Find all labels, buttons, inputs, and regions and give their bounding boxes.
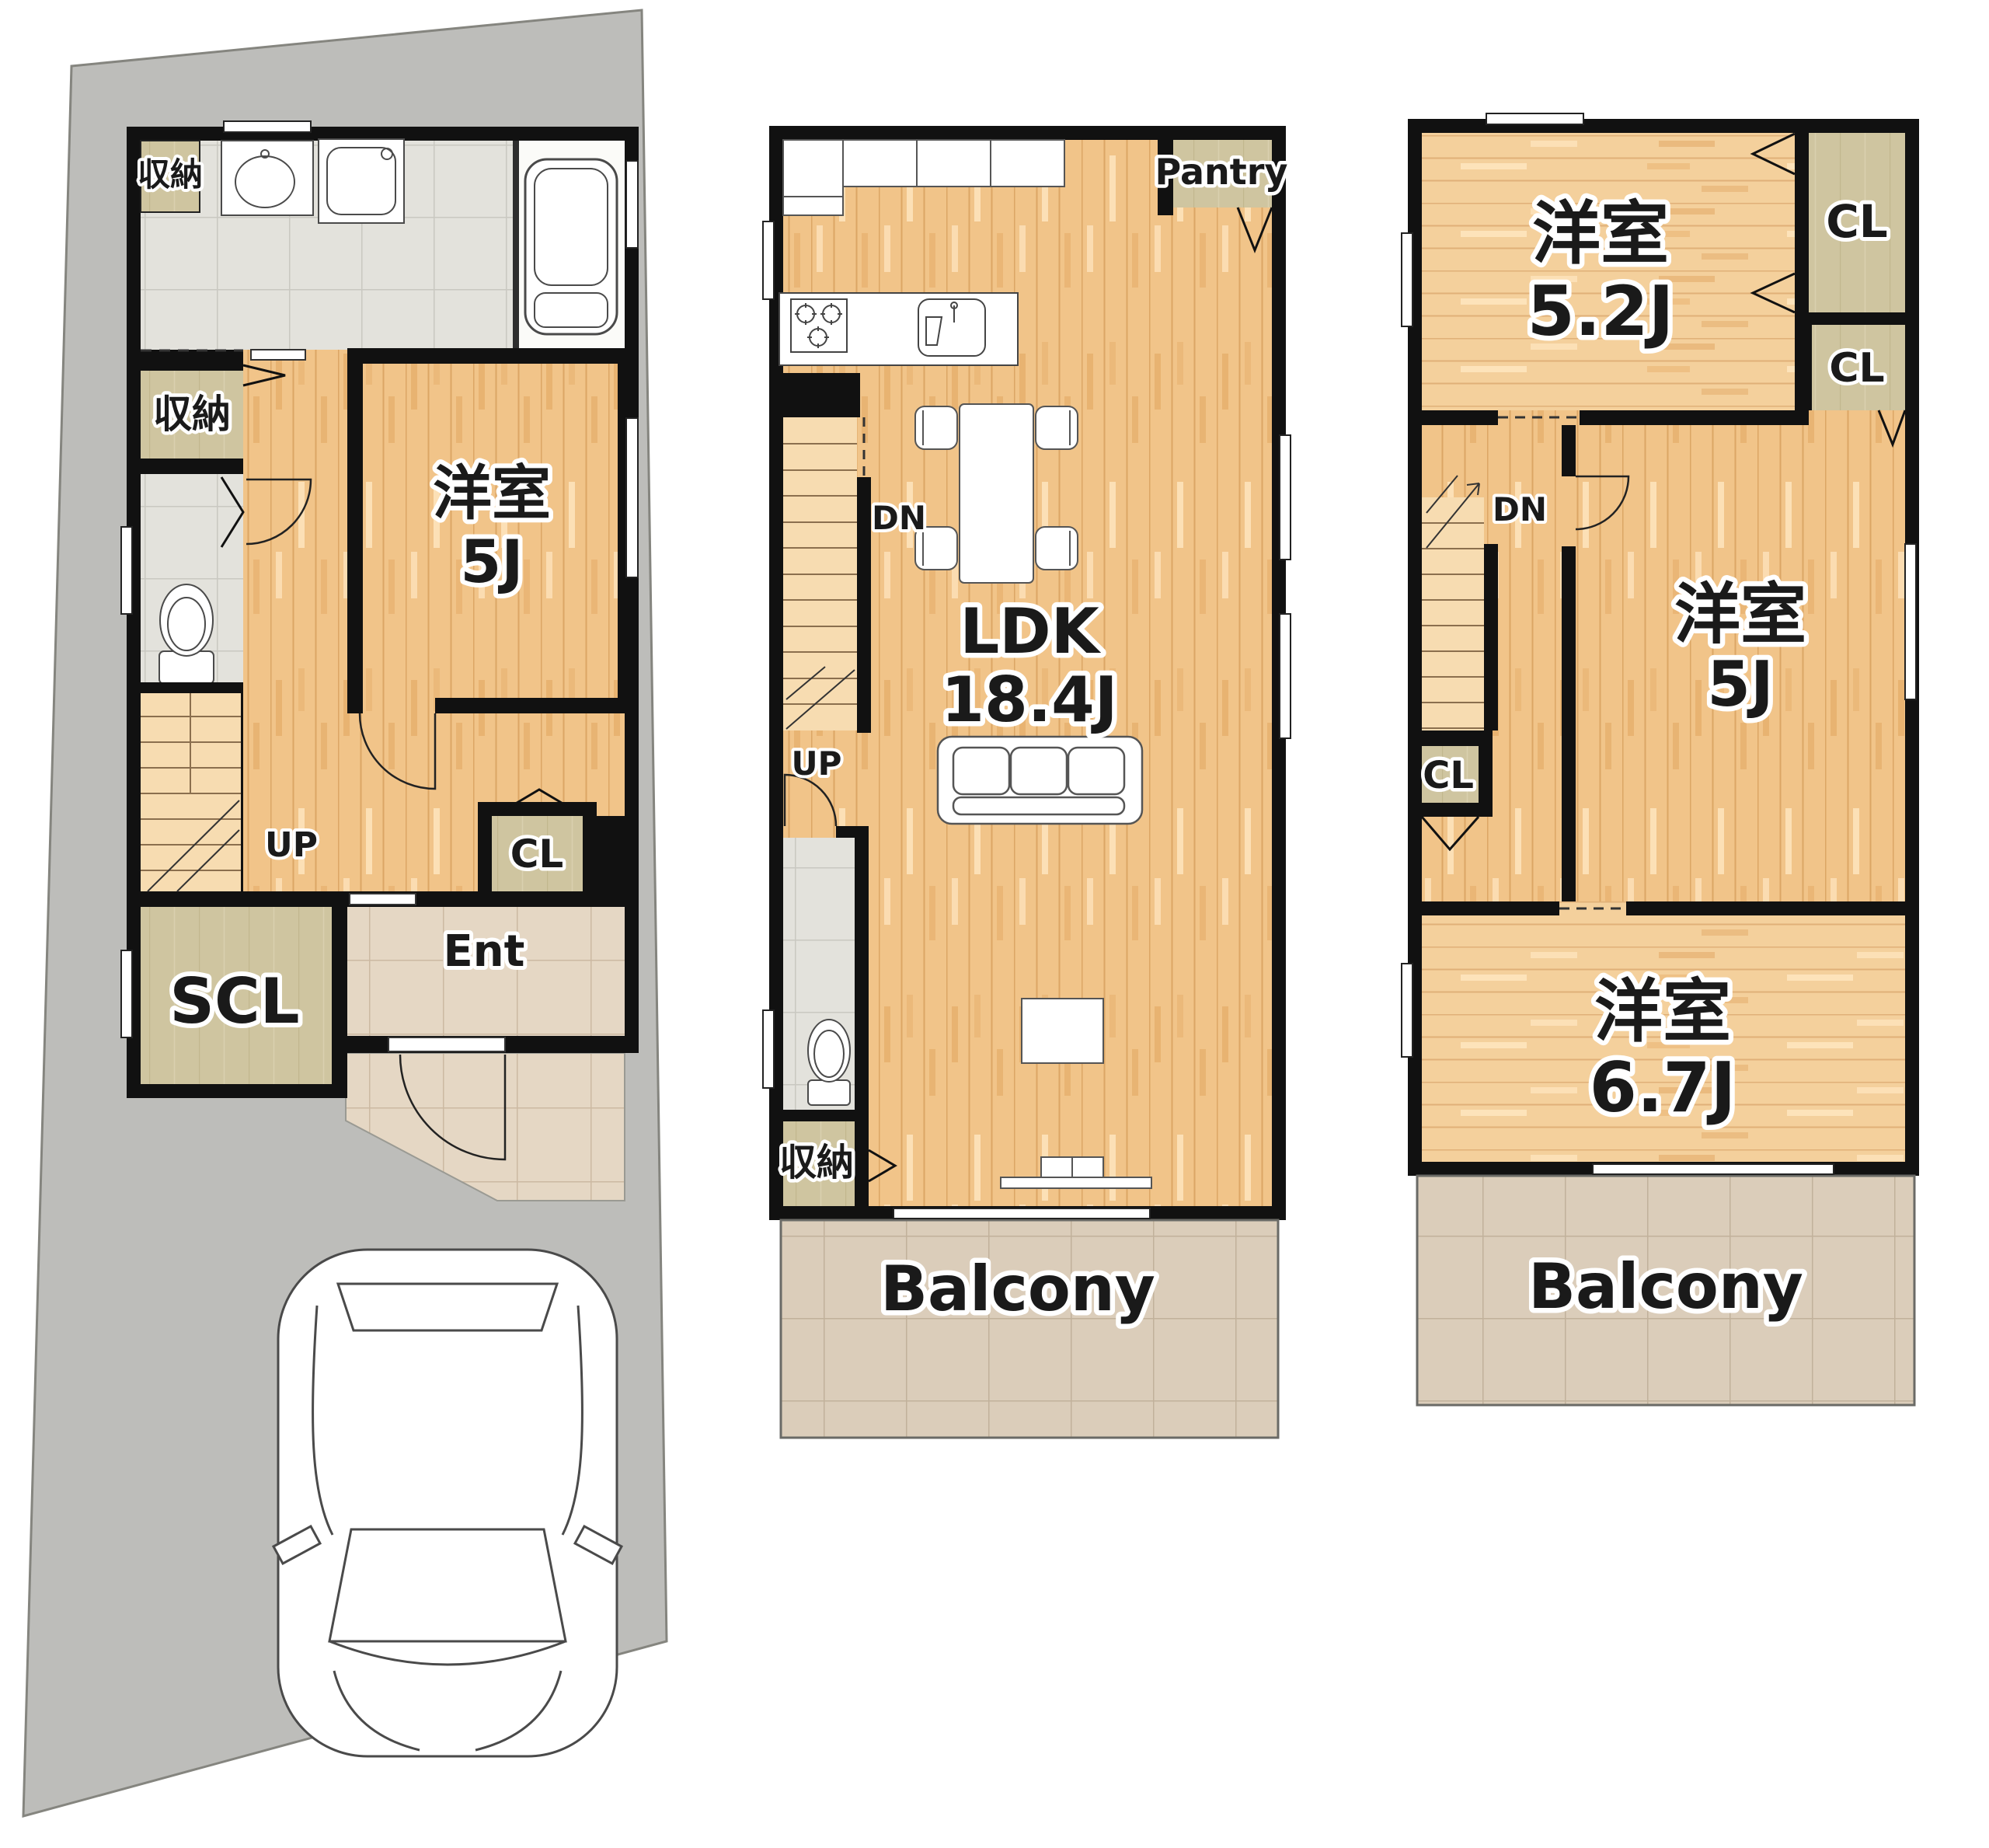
label-storage-2f: 収納 bbox=[779, 1141, 854, 1184]
chair bbox=[915, 406, 957, 449]
kitchen-sink bbox=[918, 299, 985, 356]
label-room-size-1f: 5J bbox=[460, 527, 523, 596]
label-cl3-3f: CL bbox=[1423, 754, 1474, 797]
bathtub bbox=[525, 159, 617, 334]
stair-head-wall bbox=[769, 373, 860, 417]
label-pantry: Pantry bbox=[1155, 151, 1288, 193]
floor3-plan: 洋室 5.2J CL CL DN 洋室 5J CL 洋室 6.7J Balcon… bbox=[1402, 113, 1919, 1405]
sliding-door-sill bbox=[251, 350, 305, 360]
label-ent: Ent bbox=[444, 926, 525, 977]
hall-ent-sill bbox=[350, 894, 416, 905]
label-up-2f: UP bbox=[792, 744, 842, 783]
front-door-sill bbox=[388, 1037, 505, 1051]
label-room3-size-3f: 6.7J bbox=[1590, 1048, 1736, 1128]
label-cl1-3f: CL bbox=[1826, 195, 1888, 248]
label-storage1-1f: 収納 bbox=[138, 155, 203, 194]
washbasin bbox=[221, 141, 313, 215]
side-table bbox=[1022, 999, 1103, 1063]
stove bbox=[791, 299, 847, 352]
toilet-wall-stub bbox=[836, 826, 855, 838]
label-dn-3f: DN bbox=[1493, 490, 1547, 528]
chair bbox=[1036, 406, 1078, 449]
chair bbox=[1036, 527, 1078, 570]
label-dn-2f: DN bbox=[872, 499, 926, 537]
hallway-1f-lower bbox=[347, 713, 625, 816]
label-ldk: LDK bbox=[960, 595, 1101, 668]
storage-wall-2f bbox=[783, 1110, 869, 1121]
label-cl2-3f: CL bbox=[1829, 345, 1884, 392]
label-balcony-3f: Balcony bbox=[1528, 1250, 1803, 1323]
washing-machine bbox=[319, 139, 404, 223]
floorplan-page: 収納 収納 洋室 5J UP CL SCL Ent bbox=[0, 0, 1989, 1848]
label-ldk-size: 18.4J bbox=[941, 664, 1117, 736]
label-room2-3f: 洋室 bbox=[1674, 577, 1806, 654]
kitchen-island bbox=[779, 293, 1018, 365]
dining-table bbox=[960, 404, 1033, 583]
hallway-1f bbox=[243, 350, 347, 891]
label-balcony-2f: Balcony bbox=[880, 1253, 1155, 1325]
sofa bbox=[938, 737, 1142, 824]
label-storage2-1f: 収納 bbox=[153, 392, 231, 437]
label-room1-size-3f: 5.2J bbox=[1527, 271, 1674, 351]
car bbox=[273, 1250, 622, 1756]
label-room2-size-3f: 5J bbox=[1707, 648, 1773, 720]
label-room-1f: 洋室 bbox=[433, 459, 551, 528]
bath-partition bbox=[513, 141, 519, 350]
label-up-1f: UP bbox=[265, 825, 318, 865]
floor2-plan: Pantry DN UP LDK 18.4J 収納 Balcony bbox=[763, 126, 1291, 1438]
label-cl-1f: CL bbox=[510, 832, 564, 877]
label-room3-3f: 洋室 bbox=[1594, 971, 1731, 1051]
toilet-2f bbox=[808, 1020, 850, 1105]
toilet-wall-2f bbox=[855, 826, 869, 1110]
hallway-1f-lower2 bbox=[347, 816, 478, 891]
toilet-1f bbox=[159, 584, 214, 684]
stairs-3f bbox=[1422, 497, 1484, 730]
label-scl: SCL bbox=[169, 965, 299, 1037]
stair-wall-2f bbox=[857, 477, 871, 733]
label-room1-3f: 洋室 bbox=[1532, 194, 1669, 274]
storage-wall2-2f bbox=[855, 1121, 869, 1206]
floor1-plan: 収納 収納 洋室 5J UP CL SCL Ent bbox=[23, 10, 667, 1816]
cl2-front bbox=[1795, 410, 1905, 425]
